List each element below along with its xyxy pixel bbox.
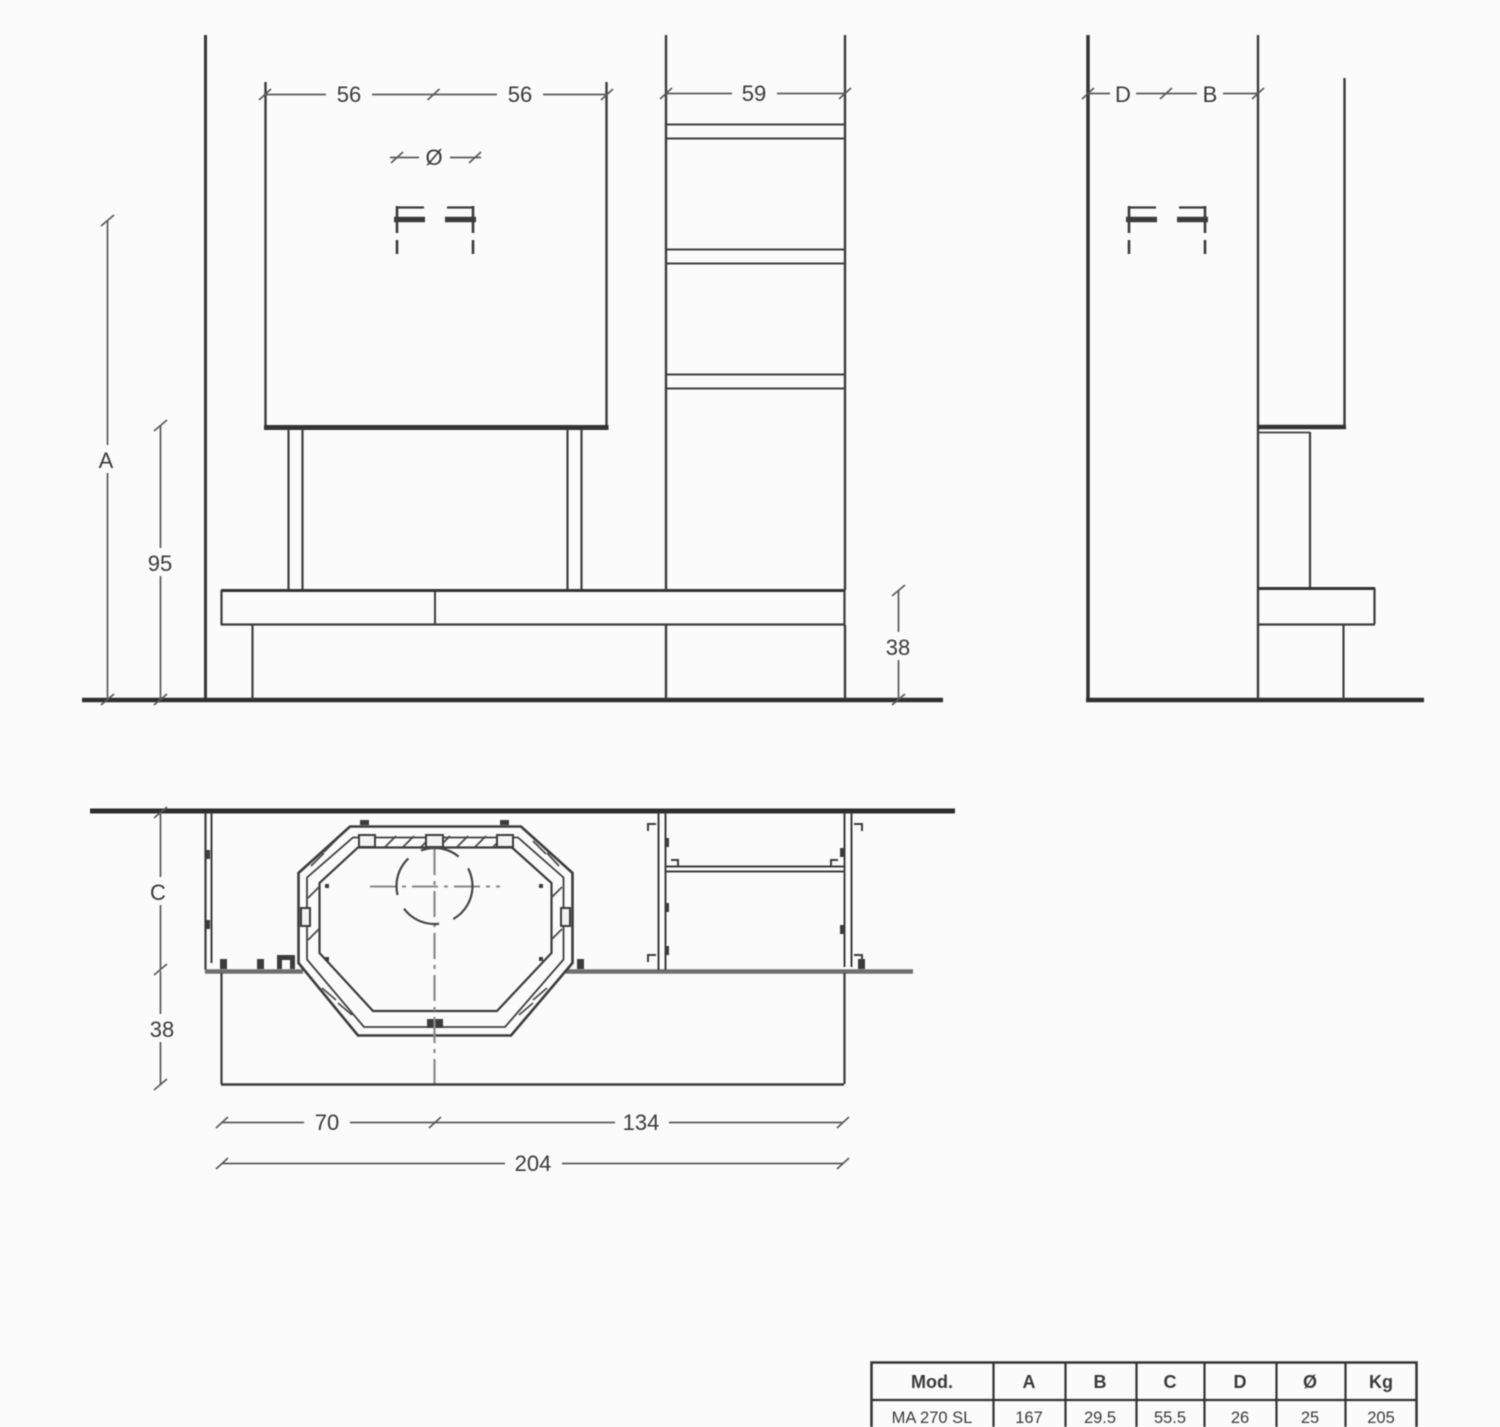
svg-text:25: 25: [1301, 1409, 1319, 1427]
svg-text:26: 26: [1231, 1409, 1249, 1427]
svg-text:70: 70: [315, 1110, 339, 1135]
svg-text:29.5: 29.5: [1084, 1409, 1116, 1427]
svg-text:134: 134: [623, 1110, 660, 1135]
svg-text:Kg: Kg: [1369, 1372, 1393, 1392]
svg-text:B: B: [1094, 1372, 1107, 1392]
svg-text:C: C: [150, 880, 166, 905]
svg-text:204: 204: [515, 1151, 552, 1176]
svg-text:A: A: [1023, 1372, 1036, 1392]
svg-text:205: 205: [1367, 1409, 1395, 1427]
svg-text:Ø: Ø: [425, 145, 442, 170]
svg-text:A: A: [99, 448, 114, 473]
svg-text:59: 59: [742, 81, 766, 106]
svg-text:Ø: Ø: [1303, 1372, 1317, 1392]
svg-text:56: 56: [337, 82, 361, 107]
svg-text:Mod.: Mod.: [911, 1372, 953, 1392]
svg-text:MA 270 SL: MA 270 SL: [892, 1409, 973, 1427]
svg-text:56: 56: [508, 82, 532, 107]
svg-text:38: 38: [886, 635, 910, 660]
svg-text:55.5: 55.5: [1154, 1409, 1186, 1427]
svg-text:C: C: [1164, 1372, 1177, 1392]
svg-text:38: 38: [150, 1017, 174, 1042]
svg-text:D: D: [1115, 82, 1131, 107]
svg-text:D: D: [1234, 1372, 1247, 1392]
svg-text:167: 167: [1015, 1409, 1043, 1427]
svg-text:B: B: [1203, 82, 1218, 107]
svg-text:95: 95: [148, 551, 172, 576]
